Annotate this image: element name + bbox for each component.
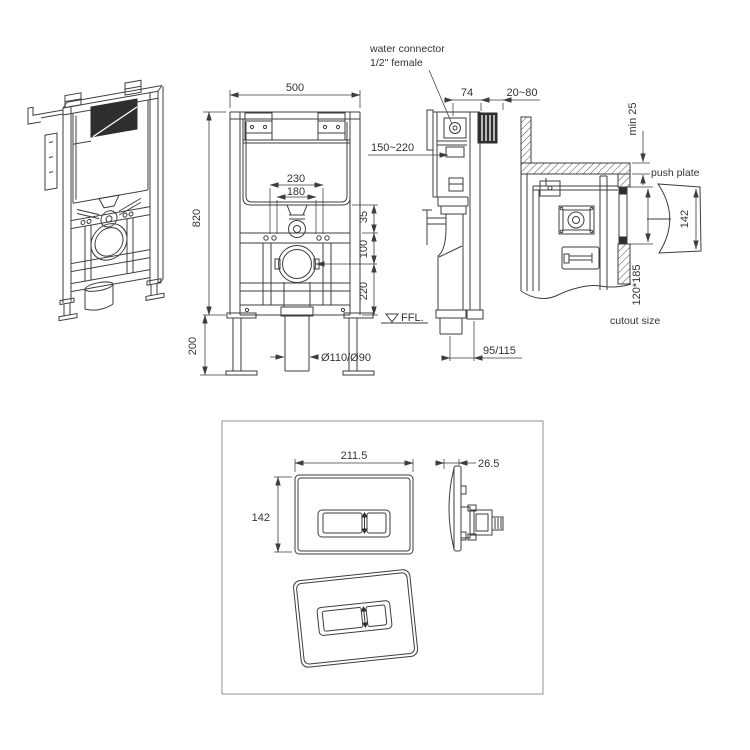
dim-bolt-outer: 230 bbox=[287, 173, 305, 185]
push-plate-3d-view bbox=[293, 569, 418, 668]
frame-front-view: 500 820 200 230 180 35 100 220 Ø110/Ø90 … bbox=[187, 82, 428, 375]
dim-100: 100 bbox=[358, 240, 370, 258]
dim-frame-width: 500 bbox=[286, 82, 304, 94]
dim-bolt-inner: 180 bbox=[287, 186, 305, 198]
dim-min-cover: min 25 bbox=[627, 102, 639, 135]
ffl-marker: FFL. bbox=[381, 312, 428, 324]
dim-74: 74 bbox=[461, 87, 473, 99]
wall-cutout-column bbox=[618, 244, 630, 284]
push-plate-profile bbox=[647, 184, 701, 253]
water-connector bbox=[444, 118, 466, 138]
water-connector-label-line1: water connector bbox=[369, 43, 445, 55]
wall-section-vertical bbox=[521, 117, 531, 163]
push-plate-detail-box: 211.5 142 26.5 bbox=[222, 421, 543, 694]
push-plate-front-view bbox=[295, 475, 413, 554]
dim-plate-height-wall: 142 bbox=[679, 210, 691, 228]
outlet-coupling bbox=[436, 310, 466, 318]
dim-wall-depth: 20~80 bbox=[507, 87, 538, 99]
dim-leg-height: 200 bbox=[187, 337, 199, 355]
wall-section-ledge bbox=[521, 163, 630, 174]
drawing-canvas: 500 820 200 230 180 35 100 220 Ø110/Ø90 … bbox=[0, 0, 750, 750]
dim-plate-depth: 26.5 bbox=[478, 458, 499, 470]
dim-height-range: 150~220 bbox=[371, 142, 414, 154]
water-connector-label-line2: 1/2" female bbox=[370, 57, 423, 69]
flush-button-large bbox=[323, 513, 362, 533]
frame-side-view: water connector 1/2" female 74 20~80 150… bbox=[368, 43, 540, 361]
dim-plate-width: 211.5 bbox=[341, 450, 368, 462]
dim-frame-height: 820 bbox=[191, 209, 203, 227]
dim-outlet-distance: 95/115 bbox=[483, 345, 516, 357]
technical-drawing-page: 500 820 200 230 180 35 100 220 Ø110/Ø90 … bbox=[0, 0, 750, 750]
dim-drain-diameter: Ø110/Ø90 bbox=[321, 352, 371, 364]
break-line bbox=[521, 284, 631, 298]
dim-plate-height: 142 bbox=[252, 512, 270, 524]
drain-connector bbox=[279, 246, 316, 283]
push-plate-label: push plate bbox=[651, 167, 700, 179]
dim-35: 35 bbox=[358, 211, 370, 223]
frame-3d-view bbox=[28, 76, 164, 326]
wall-installation-view: min 25 push plate 142 120*185 cutout siz… bbox=[521, 102, 701, 327]
dim-cutout-size: 120*185 bbox=[631, 265, 643, 306]
cutout-size-label: cutout size bbox=[610, 315, 660, 327]
actuator-rod-box bbox=[562, 247, 599, 269]
flush-button-small bbox=[367, 513, 386, 533]
push-plate-side-view bbox=[449, 466, 503, 551]
dim-220: 220 bbox=[358, 282, 370, 300]
ffl-label: FFL. bbox=[401, 312, 424, 324]
